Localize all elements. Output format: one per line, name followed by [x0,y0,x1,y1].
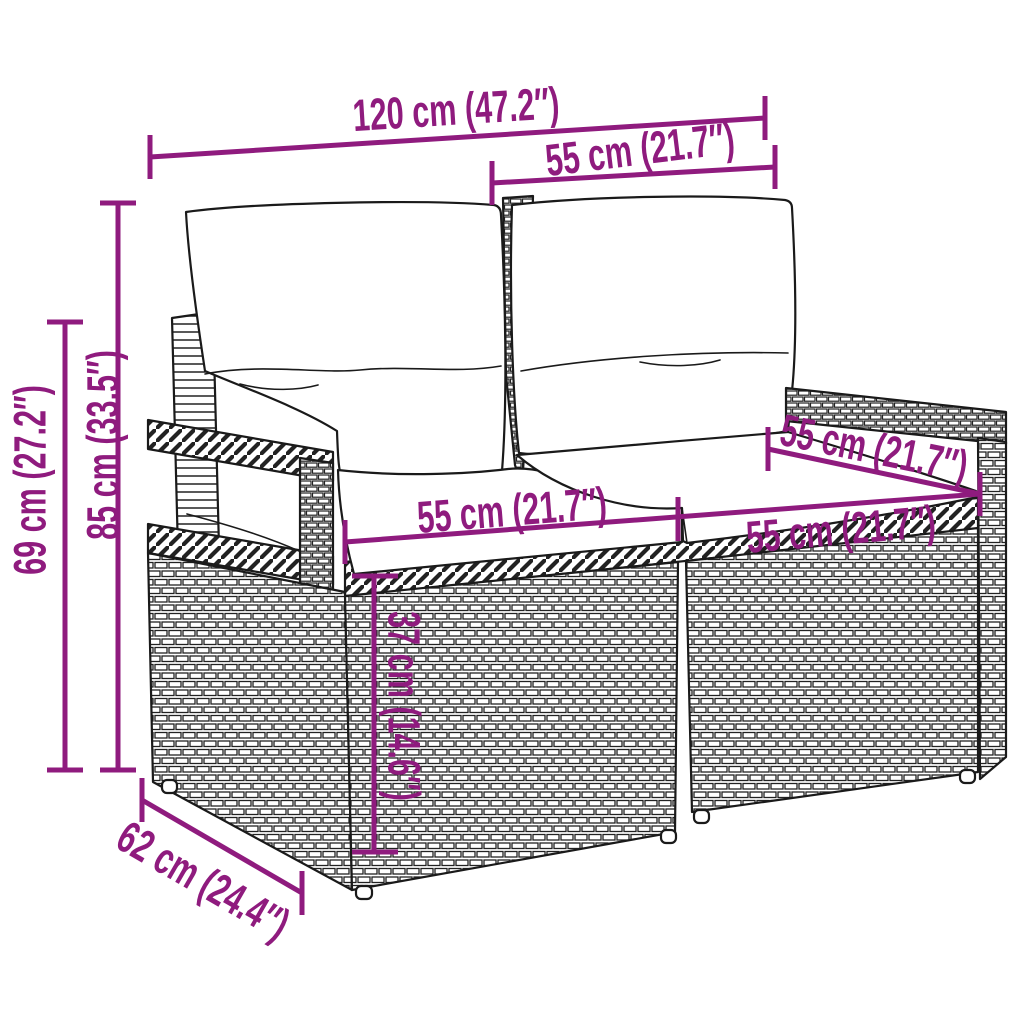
foot [162,780,177,793]
dim-overall-height-label: 85 cm (33.5″) [79,350,129,540]
right-back-pillow [511,197,795,455]
foot [661,830,676,843]
dim-armrest-height: 69 cm (27.2″) [6,322,83,770]
foot [694,810,709,823]
dim-overall-height: 85 cm (33.5″) [79,203,136,770]
diagram-canvas: 120 cm (47.2″) 55 cm (21.7″) 85 cm (33.5… [0,0,1024,1024]
foot [960,770,975,783]
right-seat-box-front [686,528,978,812]
product-dimension-diagram: 120 cm (47.2″) 55 cm (21.7″) 85 cm (33.5… [0,0,1024,1024]
dim-seat-height-label: 37 cm (14.6″) [378,611,428,801]
foot [356,886,372,899]
left-armrest-column [300,458,333,600]
dim-armrest-height-label: 69 cm (27.2″) [6,385,56,575]
